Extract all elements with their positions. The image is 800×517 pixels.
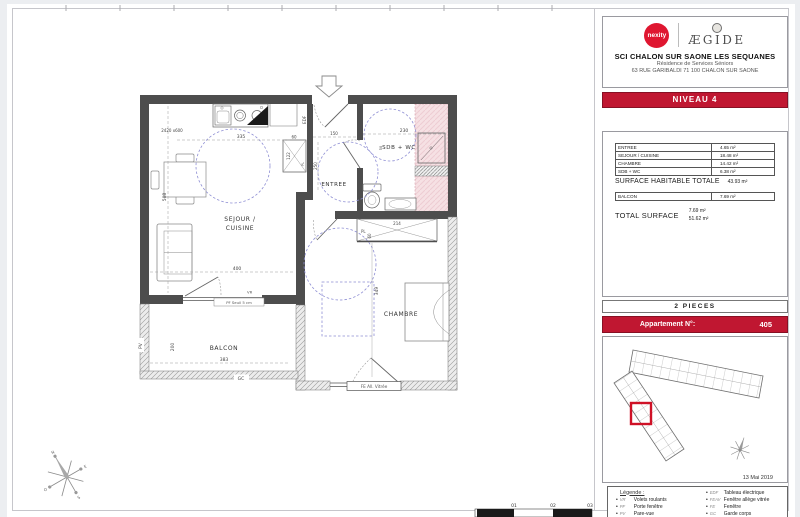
project-title: SCI CHALON SUR SAONE LES SEQUANES — [603, 52, 787, 61]
legend-item-fe: • FE Fenêtre — [706, 503, 787, 510]
key-plan-compass-icon — [727, 435, 753, 463]
pieces-box: 2 PIECES — [602, 300, 788, 313]
legend-label: Porte fenêtre — [634, 504, 663, 510]
legend-box: Légende : • VR Volets roulants • PF Port… — [607, 486, 788, 517]
legend-title: Légende : — [620, 489, 704, 496]
dim-250: 250 — [313, 162, 318, 170]
surface-table: ENTREE 4.65 m² SEJOUR / CUISINE 18.48 m²… — [615, 143, 775, 223]
chair-icon — [151, 171, 159, 189]
room-label-cuisine: CUISINE — [226, 225, 254, 232]
compass-o: O — [43, 487, 48, 493]
aegide-logo: ÆGIDE — [688, 23, 745, 47]
dim-200: 200 — [170, 343, 176, 352]
room-label-sdb-wc: SDB + WC — [382, 145, 416, 151]
legend-abbr: PF — [620, 504, 634, 509]
dim-122: 122 — [286, 152, 291, 160]
apartment-label: Appartement N°: — [603, 317, 732, 333]
room-label-chambre: CHAMBRE — [384, 311, 418, 318]
legend-item-feav: • FEAV Fenêtre allège vitrée — [706, 496, 787, 503]
dim-400: 400 — [233, 266, 242, 272]
scale-tick-2: 02 — [550, 503, 556, 509]
habitable-total-label: SURFACE HABITABLE TOTALE — [615, 178, 720, 185]
legend-abbr: FEAV — [710, 497, 724, 502]
fe-vitree-note: FE All. Vitrée — [361, 384, 388, 389]
technical-zones — [415, 104, 448, 212]
dim-230: 230 — [400, 128, 409, 134]
legend-abbr: VR — [620, 497, 634, 502]
scale-bar: 01 02 03 — [475, 503, 593, 517]
compass-rose-icon: N S E O — [28, 439, 99, 513]
surface-row-balcon: BALCON 7.69 m² — [615, 192, 775, 201]
key-plan-drawing — [603, 337, 787, 482]
apartment-banner: Appartement N°: 405 — [602, 316, 788, 333]
dim-150: 150 — [330, 131, 338, 136]
legend-label: Garde corps — [724, 511, 752, 517]
apartment-number: 405 — [759, 317, 772, 333]
legend-label: Tableau électrique — [724, 490, 765, 496]
compass-n: N — [50, 449, 55, 455]
bullet-icon: • — [616, 497, 618, 503]
legend-right-column: • EDF Tableau électrique • FEAV Fenêtre … — [706, 489, 787, 517]
duct-hatch — [415, 166, 448, 176]
key-plan-box: 13 Mai 2019 — [602, 336, 788, 483]
bullet-icon: • — [616, 504, 618, 510]
plan-date: 13 Mai 2019 — [743, 475, 773, 481]
scale-tick-3: 03 — [587, 503, 593, 509]
level-banner: NIVEAU 4 — [602, 92, 788, 108]
kitchen-counter-note: 2420 x600 — [161, 128, 183, 133]
room-label-sejour: SEJOUR / — [224, 216, 256, 223]
pf-seuil-note: PF Seuil 5 cm — [226, 300, 252, 305]
sofa-icon — [157, 224, 192, 281]
dim-383: 383 — [220, 357, 229, 363]
dim-60: 60 — [291, 135, 297, 140]
chair-icon — [176, 154, 194, 162]
legend-item-edf: • EDF Tableau électrique — [706, 489, 787, 496]
entry-arrow-icon — [316, 76, 342, 97]
legend-left-column: Légende : • VR Volets roulants • PF Port… — [616, 489, 704, 517]
project-address: 63 RUE GARIBALDI 71 100 CHALON SUR SAONE — [603, 68, 787, 75]
dining-table — [151, 154, 206, 204]
legend-abbr: PV — [620, 511, 634, 516]
scale-tick-1: 01 — [511, 503, 517, 509]
legend-label: Fenêtre allège vitrée — [724, 497, 770, 503]
habitable-total-row: SURFACE HABITABLE TOTALE 43.93 m² — [615, 178, 775, 185]
drawing-sheet: 335 400 383 150 230 214 60 2420 x600 508… — [0, 0, 800, 517]
edf-label: EDF — [302, 115, 307, 124]
aegide-medallion-icon — [712, 23, 722, 33]
surface-value: 6.38 m² — [711, 167, 775, 176]
washbasin-icon — [385, 198, 416, 210]
total-surface-values: 7.69 m² 51.62 m² — [689, 208, 709, 223]
bullet-icon: • — [706, 511, 708, 517]
bullet-icon: • — [706, 497, 708, 503]
bullet-icon: • — [706, 490, 708, 496]
legend-item-pv: • PV Pare-vue — [616, 510, 704, 517]
pv-label: PV — [138, 342, 144, 349]
compass-e: E — [83, 463, 88, 469]
legend-item-pf: • PF Porte fenêtre — [616, 503, 704, 510]
surface-value: 7.69 m² — [711, 192, 775, 201]
legend-columns: Légende : • VR Volets roulants • PF Port… — [608, 489, 787, 517]
nexity-logo-text: nexity — [647, 32, 666, 39]
garde-corps-wall — [140, 371, 298, 379]
legend-item-vr: • VR Volets roulants — [616, 496, 704, 503]
legend-item-gc: • GC Garde corps — [706, 510, 787, 517]
bedroom-door-leaf — [317, 219, 337, 240]
placard-label-1: PL — [301, 162, 305, 166]
dim-335: 335 — [237, 134, 246, 140]
room-label-entree: ENTREE — [321, 182, 346, 188]
entrance-door-leaf — [325, 104, 348, 127]
dim-60b: 60 — [367, 233, 372, 239]
legend-abbr: GC — [710, 511, 724, 516]
room-label-balcon: BALCON — [210, 345, 239, 352]
surface-table-box: ENTREE 4.65 m² SEJOUR / CUISINE 18.48 m²… — [602, 131, 788, 297]
bedroom-window-leaf — [371, 358, 398, 382]
legend-label: Volets roulants — [634, 497, 667, 503]
total-surface-row: TOTAL SURFACE 7.69 m² 51.62 m² — [615, 208, 775, 223]
habitable-total-value: 43.93 m² — [726, 179, 748, 185]
placard-label-2: PL — [361, 229, 366, 234]
bathroom-door-leaf — [343, 142, 360, 168]
aegide-logo-text: ÆGIDE — [688, 33, 745, 47]
dim-508: 508 — [162, 193, 168, 202]
logo-divider — [678, 23, 679, 47]
surface-row-sdb: SDB + WC 6.38 m² — [615, 167, 775, 176]
total-value-balcon: 7.69 m² — [689, 208, 709, 216]
total-surface-label: TOTAL SURFACE — [615, 211, 679, 220]
bullet-icon: • — [706, 504, 708, 510]
dim-214: 214 — [393, 221, 401, 226]
dim-349: 349 — [374, 287, 380, 296]
gc-label: GC — [238, 376, 245, 382]
residence-subtitle: Résidence de Services Séniors — [603, 61, 787, 68]
edf-alcove — [270, 104, 297, 126]
kitchen-counter — [213, 104, 297, 127]
surface-label: SDB + WC — [615, 167, 712, 176]
surface-label: BALCON — [615, 192, 712, 201]
bullet-icon: • — [616, 511, 618, 517]
legend-abbr: EDF — [710, 490, 724, 495]
legend-label: Pare-vue — [634, 511, 654, 517]
nexity-logo: nexity — [644, 23, 669, 48]
vr-label: VR — [247, 290, 253, 295]
logos-row: nexity ÆGIDE — [603, 17, 787, 49]
legend-label: Fenêtre — [724, 504, 741, 510]
room-labels: SEJOUR / CUISINE ENTREE SDB + WC CHAMBRE… — [210, 145, 418, 352]
total-value-overall: 51.62 m² — [689, 216, 709, 224]
compass-s: S — [76, 494, 81, 500]
legend-abbr: FE — [710, 504, 724, 509]
logo-box: nexity ÆGIDE SCI CHALON SUR SAONE LES SE… — [602, 16, 788, 88]
